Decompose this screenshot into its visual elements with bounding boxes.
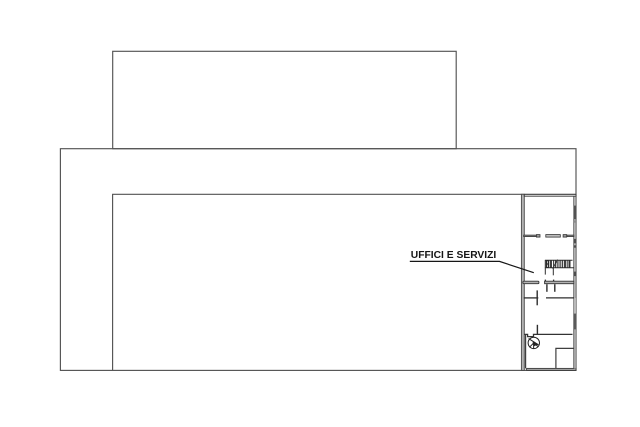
svg-text:UFFICI E SERVIZI: UFFICI E SERVIZI <box>411 249 497 261</box>
